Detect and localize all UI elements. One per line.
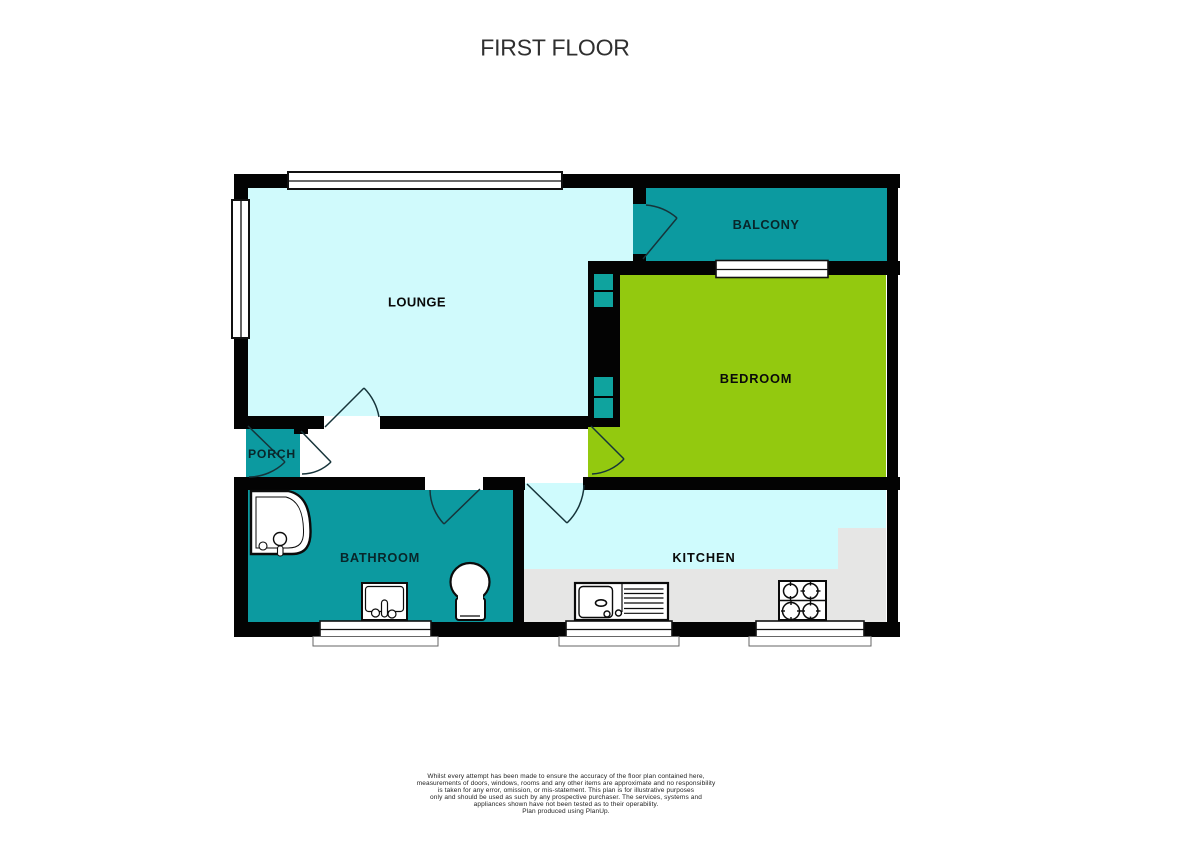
svg-text:BEDROOM: BEDROOM <box>720 371 792 386</box>
svg-text:PORCH: PORCH <box>248 447 296 461</box>
svg-text:only and should be used as suc: only and should be used as such by any p… <box>430 794 702 801</box>
svg-text:FIRST FLOOR: FIRST FLOOR <box>480 35 629 61</box>
svg-text:appliances shown have not been: appliances shown have not been tested as… <box>474 801 659 808</box>
svg-text:Plan produced using PlanUp.: Plan produced using PlanUp. <box>522 808 610 815</box>
svg-text:BATHROOM: BATHROOM <box>340 550 420 565</box>
svg-text:LOUNGE: LOUNGE <box>388 295 446 310</box>
svg-text:measurements of doors, windows: measurements of doors, windows, rooms an… <box>417 780 716 787</box>
svg-text:Whilst every attempt has been: Whilst every attempt has been made to en… <box>427 773 704 780</box>
svg-text:KITCHEN: KITCHEN <box>672 550 735 565</box>
svg-text:is taken for any error, omissi: is taken for any error, omission, or mis… <box>438 787 695 794</box>
svg-text:BALCONY: BALCONY <box>733 217 800 232</box>
